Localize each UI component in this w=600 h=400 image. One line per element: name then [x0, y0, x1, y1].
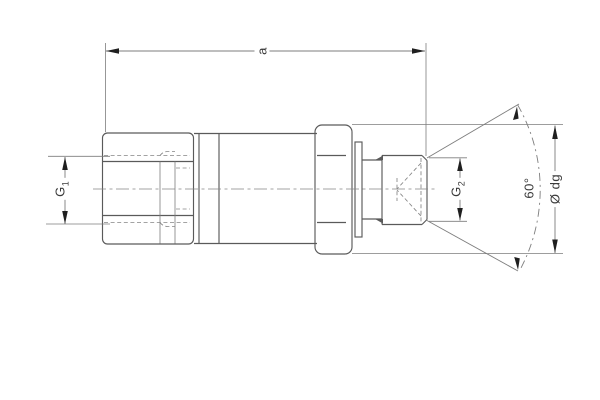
dim-a-label: a	[255, 44, 270, 58]
dia-dg-label: Ø dg	[548, 171, 563, 207]
left-hex-port	[103, 133, 194, 244]
middle-hex	[315, 125, 352, 254]
chamfer-bottom	[422, 220, 427, 225]
arc-arrow-top-icon	[513, 107, 519, 121]
hex-outline	[103, 133, 194, 244]
arrow-right-icon	[412, 48, 425, 54]
chamfer-top	[422, 156, 427, 161]
washer	[355, 142, 362, 237]
hex-outline	[315, 125, 352, 254]
arc-arrow-bottom-icon	[514, 257, 520, 270]
angle-60-label: 60°	[522, 174, 537, 201]
body-cylinder	[194, 134, 317, 244]
arrow-up-icon	[552, 126, 558, 140]
arrow-left-icon	[106, 48, 119, 54]
cone-line-lower	[427, 221, 518, 272]
thread-runout-top	[160, 152, 175, 156]
dim-g1-label: G1	[53, 178, 72, 200]
arrow-down-icon	[552, 240, 558, 254]
arrow-up-icon	[457, 159, 463, 172]
arrow-down-icon	[457, 208, 463, 221]
thread-runout-bottom	[160, 223, 175, 227]
male-stud-end	[355, 142, 427, 237]
cone-hidden-bottom	[397, 190, 421, 216]
cone-hidden-top	[397, 163, 421, 189]
dim-g2-label: G2	[449, 178, 468, 200]
drawing-linework	[0, 0, 600, 400]
arrow-up-icon	[62, 157, 68, 170]
arrow-down-icon	[62, 211, 68, 224]
dimension-a	[106, 43, 427, 156]
technical-drawing-canvas: a G1 G2 60° Ø dg	[0, 0, 600, 400]
cone-line-upper	[427, 104, 519, 158]
